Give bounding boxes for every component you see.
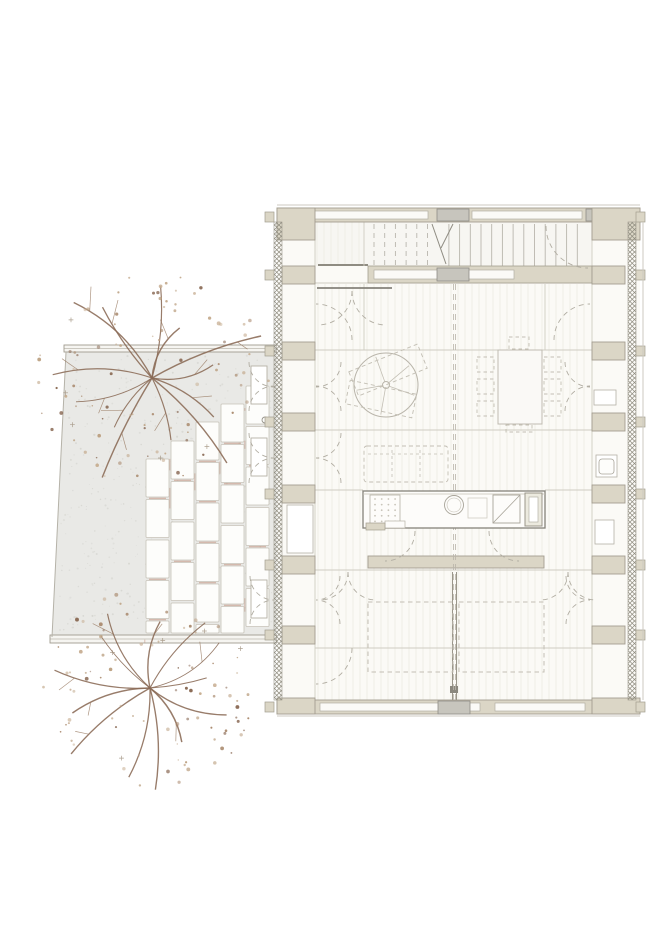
facade-stub (265, 270, 274, 280)
floor-plan-canvas (0, 0, 670, 947)
wall-pier (282, 342, 315, 360)
facade-stub (636, 630, 645, 640)
wall-niche (287, 505, 313, 553)
facade-stub (265, 212, 274, 222)
wall-pier (282, 266, 315, 284)
facade-stub (636, 270, 645, 280)
opening-panel (438, 701, 470, 714)
wall-pier (592, 556, 625, 574)
wall-pier (282, 485, 315, 503)
wall-band (368, 556, 544, 568)
corner-pier (277, 698, 315, 714)
facade-stub (636, 417, 645, 427)
dining-table (498, 350, 542, 424)
facade-stub (265, 346, 274, 356)
facade-stub (265, 417, 274, 427)
facade-stub (636, 346, 645, 356)
opening-panel (437, 209, 469, 221)
facade-stub (265, 560, 274, 570)
insulation-hatch (628, 222, 636, 700)
wall-pier (592, 413, 625, 431)
wall-pier (592, 626, 625, 644)
facade-stub (265, 630, 274, 640)
wall-pier (592, 485, 625, 503)
wall-niche (594, 390, 616, 405)
terrace-door-leaf (251, 438, 267, 476)
wall-pier (592, 266, 625, 284)
toilet (599, 459, 614, 474)
corner-pier (277, 208, 315, 240)
wall-pier (282, 413, 315, 431)
wall-pier (282, 626, 315, 644)
facade-stub (636, 702, 645, 712)
facade-stub (265, 702, 274, 712)
corner-pier (592, 698, 640, 714)
wall-pier (282, 556, 315, 574)
floor-plan-page (0, 0, 670, 947)
wall-pier (592, 342, 625, 360)
facade-stub (636, 212, 645, 222)
facade-stub (636, 489, 645, 499)
facade-stub (636, 560, 645, 570)
wall-niche (595, 520, 614, 544)
insulation-hatch (274, 222, 282, 700)
facade-stub (265, 489, 274, 499)
